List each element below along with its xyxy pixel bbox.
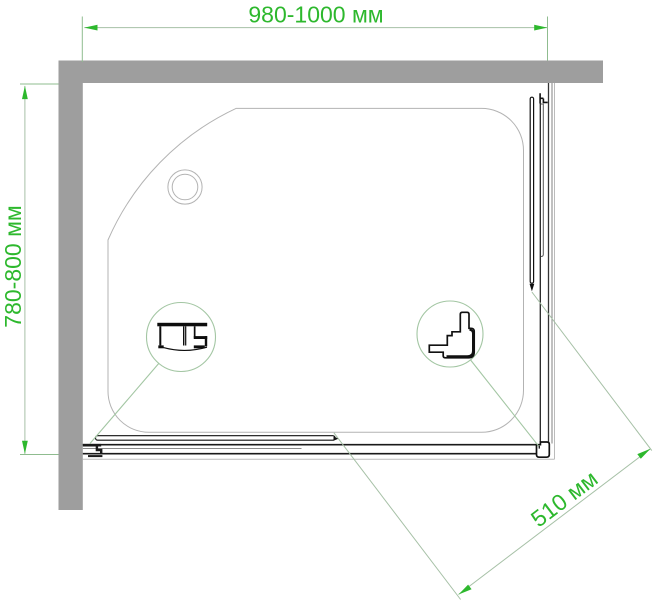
svg-text:780-800 мм: 780-800 мм <box>0 205 26 327</box>
svg-text:980-1000 мм: 980-1000 мм <box>248 2 383 28</box>
svg-text:510 мм: 510 мм <box>526 465 603 532</box>
